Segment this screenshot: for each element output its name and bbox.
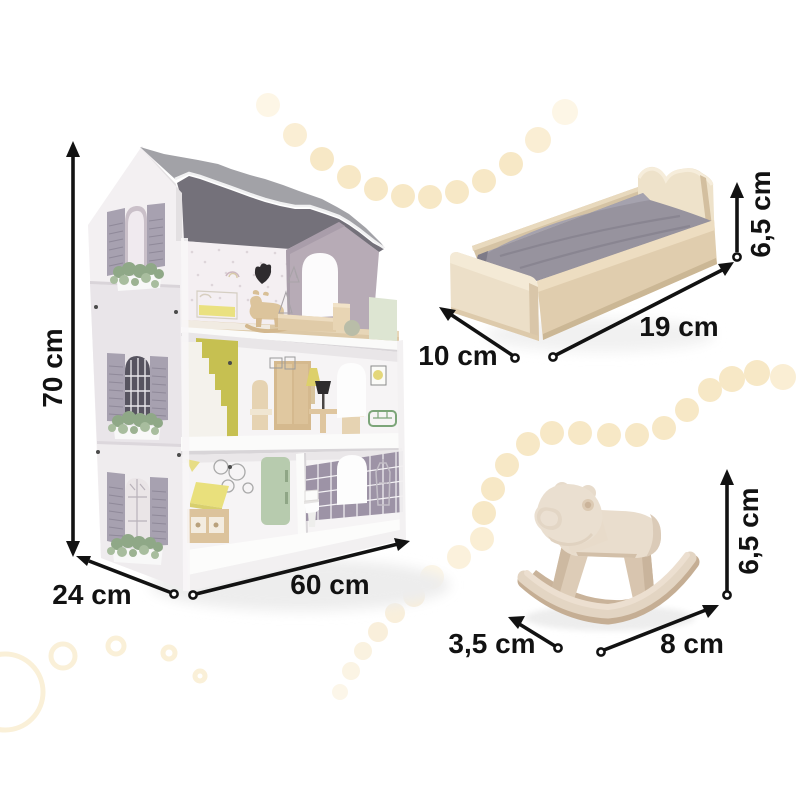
svg-text:70 cm: 70 cm: [37, 328, 68, 407]
svg-text:6,5 cm: 6,5 cm: [745, 170, 776, 257]
svg-text:8 cm: 8 cm: [660, 628, 724, 659]
svg-text:24 cm: 24 cm: [52, 579, 131, 610]
svg-text:3,5 cm: 3,5 cm: [448, 628, 535, 659]
svg-text:19 cm: 19 cm: [639, 311, 718, 342]
svg-text:60 cm: 60 cm: [290, 569, 369, 600]
svg-text:10 cm: 10 cm: [418, 340, 497, 371]
svg-text:6,5 cm: 6,5 cm: [733, 487, 764, 574]
